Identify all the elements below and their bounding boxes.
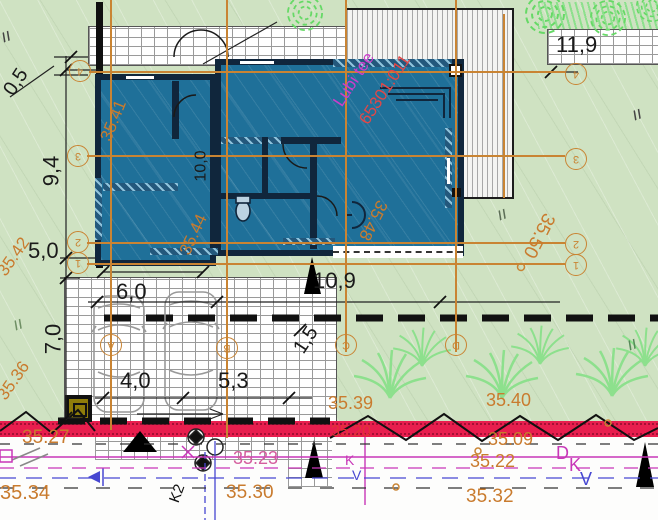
axis-line-h2: [87, 242, 565, 244]
dim-label: 4,0: [120, 370, 151, 392]
dim-label: 10,9: [313, 270, 356, 292]
axis-bubble: 3: [565, 148, 587, 170]
axis-bubble-label: 4: [77, 65, 83, 77]
axis-bubble: D: [445, 334, 467, 356]
elevation-label: 35.09: [488, 430, 533, 448]
utility-label-v: V: [580, 470, 592, 488]
axis-line-h3: [87, 155, 565, 157]
axis-bubble: 3: [67, 145, 89, 167]
axis-bubble: C: [335, 334, 357, 356]
utility-label-d: D: [556, 444, 569, 462]
axis-bubble: 1: [67, 252, 89, 274]
axis-bubble-label: 1: [75, 257, 81, 269]
axis-bubble-label: C: [342, 339, 350, 351]
utility-label-v: V: [352, 468, 361, 482]
elevation-label: 35.32: [466, 487, 514, 506]
axis-bubble-label: B: [223, 342, 230, 354]
dim-label: 7,0: [42, 324, 64, 355]
axis-bubble-label: 2: [573, 238, 579, 250]
axis-bubble-label: D: [452, 339, 460, 351]
utility-box-outline: [0, 450, 12, 462]
site-plan-canvas: 4 3 2 1 4 3 2 1 A B C D 11,9 0,5 9,4 5,0…: [0, 0, 658, 520]
axis-bubble: 1: [565, 254, 587, 276]
axis-line-ve: [503, 14, 505, 198]
elevation-label: 35.20: [331, 424, 371, 440]
axis-bubble-label: 1: [573, 259, 579, 271]
axis-bubble-label: 2: [75, 236, 81, 248]
axis-bubble: 4: [565, 63, 587, 85]
car-icon: [163, 292, 219, 410]
elevation-label: 35.39: [328, 394, 373, 412]
elevation-label: 35.40: [486, 391, 531, 409]
dim-label: 11,9: [556, 34, 597, 56]
axis-bubble: B: [216, 337, 238, 359]
axis-bubble: 4: [69, 60, 91, 82]
dim-label: 5,3: [218, 370, 249, 392]
axis-bubble-label: 4: [573, 68, 579, 80]
utility-label-k: K: [345, 453, 354, 467]
axis-bubble: 2: [67, 231, 89, 253]
elevation-label: 35.34: [0, 483, 50, 503]
survey-arrow-icon: [636, 442, 654, 487]
survey-arrow-icon: [305, 440, 323, 478]
dim-label: 9,4: [40, 156, 62, 187]
toilet-icon: [236, 196, 250, 221]
axis-line-h1: [87, 263, 565, 265]
axis-bubble: 2: [565, 233, 587, 255]
axis-line-va: [110, 0, 112, 430]
axis-bubble-label: A: [107, 339, 114, 351]
dim-label: 6,0: [116, 281, 147, 303]
axis-bubble: A: [100, 334, 122, 356]
water-arrow-icon: [88, 471, 100, 483]
survey-arrow-icon: [123, 431, 157, 452]
axis-line-vd: [455, 0, 457, 352]
axis-line-vc: [345, 0, 347, 352]
elevation-label: 35.30: [226, 483, 274, 502]
linework-overlay: [0, 0, 658, 520]
door-arcs: [174, 30, 337, 216]
axis-line-h4: [89, 71, 565, 73]
elevation-label: 35.27: [22, 428, 70, 447]
elevation-label: 35.23: [233, 449, 278, 467]
car-icon: [92, 296, 146, 412]
axis-bubble-label: 3: [75, 150, 81, 162]
dim-label: 10,0: [194, 150, 210, 181]
utility-cross: [182, 446, 194, 458]
elevation-label: 35.22: [470, 452, 515, 470]
axis-bubble-label: 3: [573, 153, 579, 165]
